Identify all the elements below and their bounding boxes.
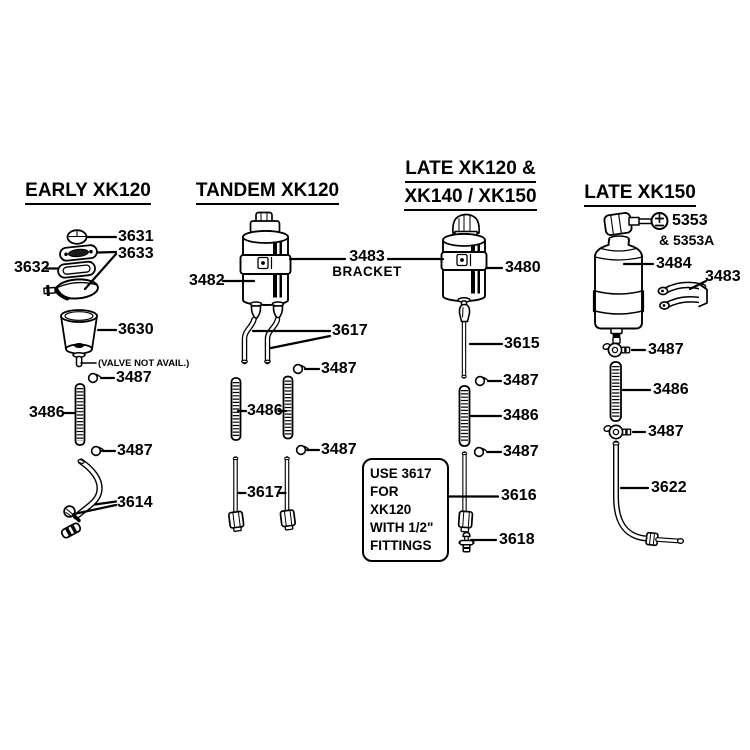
early-fitting-a-drawing (89, 374, 100, 383)
late-bracket-drawing (442, 252, 487, 270)
note-box-line3: WITH 1/2" (370, 519, 443, 537)
late-fitting-a-drawing (476, 377, 487, 386)
bracket-callout-caption: BRACKET (331, 264, 403, 279)
part-label-3618: 3618 (499, 531, 535, 549)
part-label-3622: 3622 (651, 479, 687, 497)
part-label-3616: 3616 (501, 487, 537, 505)
part-label-3487-early-b: 3487 (117, 442, 153, 460)
part-label-3483-clamp: 3483 (705, 268, 741, 286)
part-label-3482: 3482 (189, 272, 225, 290)
part-label-3632: 3632 (14, 259, 50, 277)
tandem-pipes-upper-drawing (242, 320, 278, 363)
early-valve-stub-drawing (73, 353, 85, 367)
early-reservoir-cup-drawing (61, 310, 97, 354)
part-label-5353a: & 5353A (659, 231, 714, 249)
note-box-line2: FOR XK120 (370, 483, 443, 519)
section-title-late-xk150-text: LATE XK150 (584, 182, 696, 207)
part-label-3633: 3633 (118, 245, 154, 263)
xk150-hose-drawing (611, 362, 622, 421)
part-label-3486-xk150: 3486 (653, 381, 689, 399)
section-title-tandem-xk120-text: TANDEM XK120 (196, 180, 339, 205)
late-pipe-3615-drawing (459, 305, 469, 378)
tandem-bracket-drawing (241, 255, 291, 274)
early-pipe-drawing (60, 459, 99, 539)
part-label-3617-upper: 3617 (332, 322, 368, 340)
tandem-fitting-a-drawing (294, 365, 305, 374)
diagram-artwork (0, 0, 750, 750)
late-hose-drawing (460, 386, 470, 446)
valve-not-available-note: (VALVE NOT AVAIL.) (98, 358, 189, 369)
note-box: USE 3617 FOR XK120 WITH 1/2" FITTINGS (362, 458, 449, 562)
part-label-3615: 3615 (504, 335, 540, 353)
part-label-3480: 3480 (505, 259, 541, 277)
part-label-3487-xk150-a: 3487 (648, 341, 684, 359)
part-label-3630: 3630 (118, 321, 154, 339)
early-cap-drawing (68, 230, 87, 244)
part-label-3617-lower: 3617 (247, 484, 283, 502)
part-label-3487-tandem-b: 3487 (321, 441, 357, 459)
filler-cap-symbol-icon (640, 213, 668, 229)
part-label-3487-early-a: 3487 (116, 369, 152, 387)
part-label-3631: 3631 (118, 228, 154, 246)
part-label-3487-late-b: 3487 (503, 443, 539, 461)
late-pipe-3616-drawing (458, 452, 472, 532)
late-fitting-3618-drawing (459, 533, 475, 552)
part-label-3614: 3614 (117, 494, 153, 512)
bracket-callout-number: 3483 (331, 249, 403, 264)
note-box-line4: FITTINGS (370, 537, 443, 555)
early-hose-drawing (76, 384, 85, 445)
section-title-early-xk120: EARLY XK120 (12, 180, 164, 205)
part-label-5353: 5353 (672, 212, 708, 230)
section-title-late-xk120: LATE XK120 & XK140 / XK150 (393, 158, 548, 214)
part-label-3487-tandem-a: 3487 (321, 360, 357, 378)
early-seal-ring-drawing (57, 261, 95, 278)
part-label-3486-late: 3486 (503, 407, 539, 425)
section-title-late-xk120-line1: LATE XK120 & (405, 158, 536, 183)
part-label-3486-early: 3486 (29, 404, 65, 422)
xk150-banjo-a-drawing (602, 343, 629, 357)
bracket-callout-3483: 3483 BRACKET (331, 249, 403, 279)
section-title-late-xk150: LATE XK150 (576, 182, 704, 207)
tandem-hose-right-drawing (284, 377, 293, 439)
section-title-early-xk120-text: EARLY XK120 (25, 180, 151, 205)
part-label-3487-late-a: 3487 (503, 372, 539, 390)
section-title-late-xk120-line2: XK140 / XK150 (404, 186, 536, 211)
parts-diagram: EARLY XK120 TANDEM XK120 LATE XK120 & XK… (0, 0, 750, 750)
part-label-3486-tandem: 3486 (247, 402, 283, 420)
xk150-bottle-drawing (594, 236, 644, 343)
late-fitting-b-drawing (475, 448, 486, 457)
early-gasket-plate-drawing (59, 245, 97, 262)
xk150-banjo-b-drawing (603, 425, 630, 439)
part-label-3487-xk150-b: 3487 (648, 423, 684, 441)
part-label-3484: 3484 (656, 255, 692, 273)
xk150-cap-drawing (604, 212, 639, 235)
note-box-line1: USE 3617 (370, 465, 443, 483)
section-title-tandem-xk120: TANDEM XK120 (190, 180, 345, 205)
tandem-hose-left-drawing (232, 378, 241, 440)
xk150-clamp-drawing (658, 284, 707, 309)
